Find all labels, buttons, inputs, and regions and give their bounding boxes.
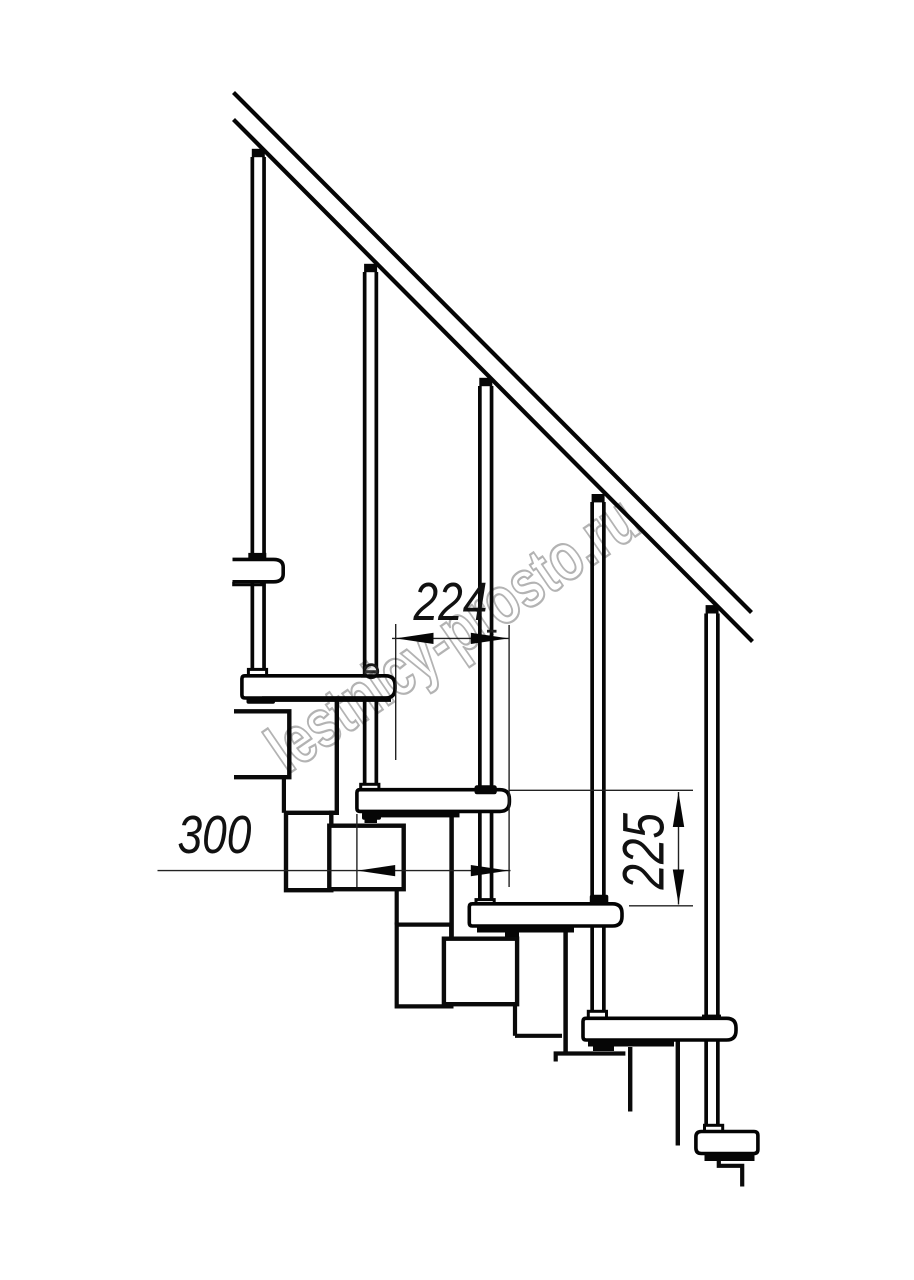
svg-text:225: 225: [612, 812, 676, 890]
svg-text:300: 300: [178, 805, 252, 865]
